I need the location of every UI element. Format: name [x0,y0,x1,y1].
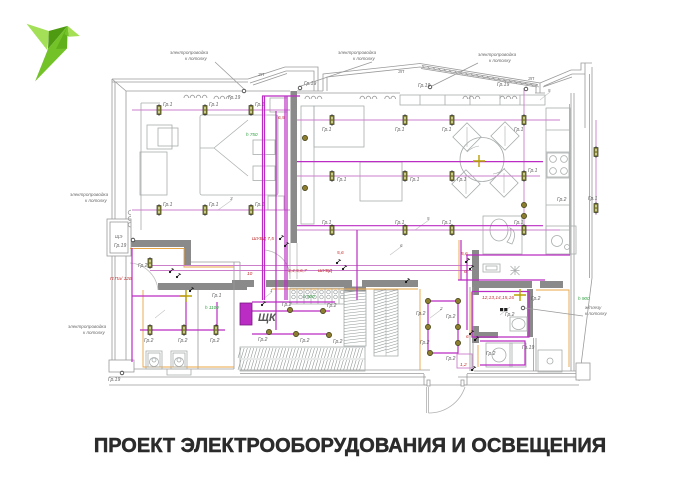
svg-text:Гр.2: Гр.2 [138,263,148,269]
svg-text:Гр.1: Гр.1 [410,177,420,183]
svg-text:6: 6 [400,243,403,248]
svg-text:Гр.2: Гр.2 [178,338,188,344]
svg-text:5,6: 5,6 [337,250,344,256]
svg-text:Гр.2: Гр.2 [282,302,292,308]
svg-text:к потолку: к потолку [185,56,208,61]
svg-text:к потолку: к потолку [83,330,106,335]
svg-text:Гр.2: Гр.2 [446,356,456,362]
svg-text:Гр.1: Гр.1 [322,220,332,226]
svg-text:ЩЭ: ЩЭ [115,234,123,239]
svg-text:Гр.1: Гр.1 [442,127,452,133]
svg-text:ж/плезу: ж/плезу [584,305,602,310]
svg-text:Гр.19: Гр.19 [228,95,240,101]
svg-text:Гр.1: Гр.1 [163,202,173,208]
svg-text:Гр.19: Гр.19 [522,345,534,351]
svg-text:к потолку: к потолку [489,58,512,63]
svg-text:ЩК: ЩК [258,312,277,324]
svg-text:1,2: 1,2 [460,362,467,368]
svg-text:Гр.2: Гр.2 [446,314,456,320]
svg-text:6,5: 6,5 [278,115,285,121]
svg-text:Гр.1: Гр.1 [209,102,219,108]
svg-text:к потолку: к потолку [353,56,376,61]
svg-text:Гр.1: Гр.1 [163,102,173,108]
svg-text:ЗП: ЗП [258,72,265,77]
svg-text:Гр.2: Гр.2 [486,351,496,357]
svg-text:Гр.2: Гр.2 [531,296,541,302]
svg-text:электропроводка: электропроводка [70,192,109,197]
svg-text:Гр.1: Гр.1 [337,177,347,183]
svg-text:П.Па/ 12В: П.Па/ 12В [110,276,133,282]
svg-text:Гр.2: Гр.2 [505,312,515,318]
svg-text:Гр.2: Гр.2 [333,339,343,345]
svg-text:5: 5 [548,88,551,93]
svg-text:Гр.2: Гр.2 [210,338,220,344]
svg-text:Гр.19: Гр.19 [497,82,509,88]
svg-text:Гр.1: Гр.1 [514,127,524,133]
svg-text:Гр.2: Гр.2 [557,197,567,203]
svg-text:Гр.19: Гр.19 [108,377,120,383]
svg-text:Гр.1: Гр.1 [322,127,332,133]
svg-text:Гр.1: Гр.1 [442,220,452,226]
svg-text:Гр.19: Гр.19 [114,243,126,249]
svg-text:Гр.2: Гр.2 [144,338,154,344]
svg-text:h 900: h 900 [578,296,590,301]
svg-text:ЗП: ЗП [398,69,405,74]
svg-text:Гр.1: Гр.1 [514,220,524,226]
svg-text:Гр.2: Гр.2 [420,340,430,346]
svg-text:h 1100: h 1100 [205,305,219,310]
svg-text:электропроводка: электропроводка [338,50,377,55]
svg-text:электропроводка: электропроводка [170,50,209,55]
svg-text:Гр.2: Гр.2 [416,311,426,317]
svg-text:10: 10 [247,271,253,277]
svg-text:h 900: h 900 [303,294,315,299]
svg-text:6: 6 [464,269,467,275]
svg-text:h 750: h 750 [246,132,258,137]
svg-text:Гр.1: Гр.1 [255,102,265,108]
svg-text:Гр.1: Гр.1 [255,202,265,208]
svg-text:Гр.1: Гр.1 [209,202,219,208]
svg-text:Гр.2: Гр.2 [258,337,268,343]
svg-text:Гр.2: Гр.2 [300,338,310,344]
svg-text:Гр.1: Гр.1 [588,196,598,202]
svg-text:электропроводка: электропроводка [478,52,517,57]
svg-text:12,13,14,15,16: 12,13,14,15,16 [482,295,514,301]
svg-text:электропроводка: электропроводка [68,324,107,329]
svg-text:6: 6 [466,334,469,340]
svg-text:Гр.1: Гр.1 [457,177,467,183]
svg-text:Гр.1: Гр.1 [395,127,405,133]
svg-text:Гр.1: Гр.1 [212,293,222,299]
svg-text:ЗП: ЗП [528,76,535,81]
svg-text:3: 3 [230,196,233,201]
svg-text:5: 5 [427,216,430,221]
svg-text:Гр.1: Гр.1 [395,220,405,226]
svg-text:Гр.1: Гр.1 [528,168,538,174]
svg-text:1: 1 [270,288,273,293]
svg-text:ШУВД 7,5: ШУВД 7,5 [252,236,274,242]
svg-text:к потолку: к потолку [85,198,108,203]
svg-text:Гр.19: Гр.19 [418,83,430,89]
svg-text:2: 2 [439,306,443,311]
svg-text:ШУВД: ШУВД [318,268,333,274]
svg-text:3,4,5,6,7: 3,4,5,6,7 [288,268,307,274]
svg-text:Гр.2: Гр.2 [327,303,337,309]
svg-text:5,6: 5,6 [461,251,468,257]
svg-text:к потолку: к потолку [585,311,608,316]
